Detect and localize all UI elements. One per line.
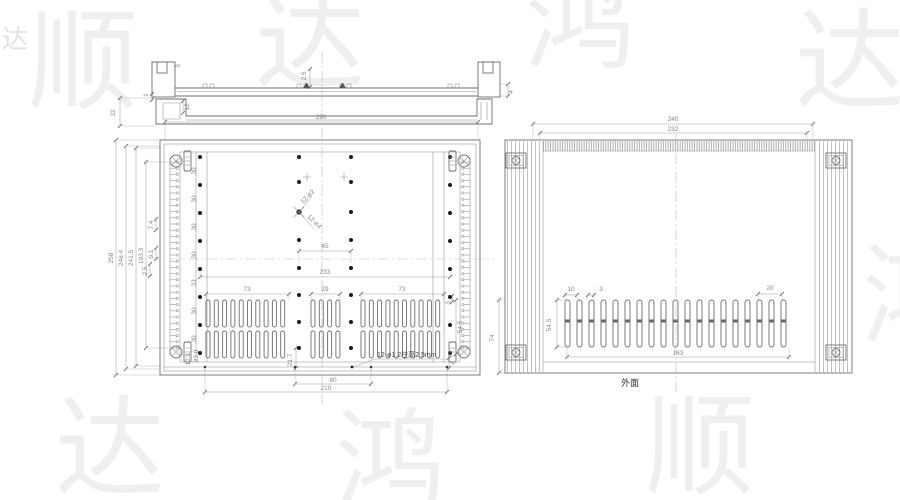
dimension-labels: 3 2.5 4 32 1 12 290 258 246.4 241.5 193.…	[108, 64, 774, 392]
watermark-char: 鸿	[525, 0, 635, 86]
dim-54-5: 54.5	[457, 320, 464, 333]
side-comb-strips	[170, 161, 470, 349]
cad-drawing: 顺 达 鸿 达 达 鸿 顺 鸿 达	[0, 0, 900, 500]
dim-246-4: 246.4	[118, 249, 125, 266]
watermark-char: 达	[795, 0, 900, 126]
dim-54-5r: 54.5	[546, 318, 553, 331]
dim-193-3: 193.3	[138, 247, 145, 264]
watermark-char: 鸿	[335, 398, 445, 500]
watermark-char: 顺	[28, 0, 138, 126]
dim-241-5: 241.5	[128, 249, 135, 266]
dim-4: 4	[450, 361, 457, 365]
dim-edge-4: 4	[508, 90, 515, 94]
dim-7-4: 7.4	[148, 220, 155, 229]
watermark-char: 达	[255, 0, 365, 106]
dim-12-1: 12.1	[185, 352, 192, 365]
top-serration-band	[543, 141, 815, 151]
dim-pitch: 30	[191, 223, 198, 231]
dim-width-290: 290	[316, 114, 327, 121]
dim-80: 80	[329, 377, 337, 384]
dim-21-7: 21.7	[287, 353, 294, 366]
dim-gap-1: 1	[143, 93, 150, 97]
dim-slot-73b: 73	[398, 286, 406, 293]
hole-dots	[198, 155, 452, 368]
dim-pitch: 30	[191, 335, 198, 343]
leader-12-d2: 12-ø2	[299, 188, 316, 205]
cad-sheet: 顺 达 鸿 达 达 鸿 顺 鸿 达	[0, 0, 900, 500]
heatsink-fins	[508, 141, 848, 372]
dim-9-1: 9.1	[148, 249, 155, 258]
dim-210: 210	[321, 385, 332, 392]
dim-pitch: 30	[191, 251, 198, 259]
watermark-char: 鸿	[862, 233, 900, 361]
dim-slot-29: 29	[321, 286, 329, 293]
dim-pitch: 33	[191, 279, 198, 287]
dim-height-32: 32	[110, 109, 117, 117]
dim-pitch: 30	[191, 195, 198, 203]
dim-web-2-5: 2.5	[301, 71, 308, 80]
dim-2-5: 2.5	[142, 266, 149, 275]
corner-screw-posts	[170, 151, 470, 362]
dim-74: 74	[489, 334, 496, 342]
dim-pitch: 30	[191, 167, 198, 175]
note-leader	[353, 359, 450, 367]
dim-slot-73a: 73	[243, 286, 251, 293]
dim-wall-12: 12	[184, 103, 191, 111]
dim-20: 20	[766, 285, 774, 292]
dim-163: 163	[673, 350, 684, 357]
vent-slots-outside	[565, 300, 786, 347]
dim-240: 240	[668, 116, 679, 123]
inside-view	[160, 140, 480, 375]
outside-face-label: 外面	[621, 377, 639, 388]
center-cross-marks	[303, 173, 348, 181]
dim-232: 232	[668, 126, 679, 133]
vent-slots-inside	[206, 300, 440, 358]
dim-10: 10	[567, 286, 575, 293]
dim-3r: 3	[599, 286, 603, 293]
dim-3: 3	[445, 301, 452, 305]
dim-pitch: 30	[191, 307, 198, 315]
dim-notch-3: 3	[175, 64, 182, 68]
watermark-char: 顺	[645, 383, 755, 500]
watermark: 顺 达 鸿 达 达 鸿 顺 鸿 达	[2, 0, 900, 500]
dim-258: 258	[108, 252, 115, 263]
dim-233: 233	[320, 269, 331, 276]
dim-23-8: 23.8	[193, 349, 200, 362]
watermark-stamp: 达	[2, 25, 28, 55]
post-note: 12-ø1.2柱高2.5mm	[377, 350, 437, 359]
watermark-char: 达	[55, 385, 165, 500]
dim-45: 45	[321, 243, 329, 250]
